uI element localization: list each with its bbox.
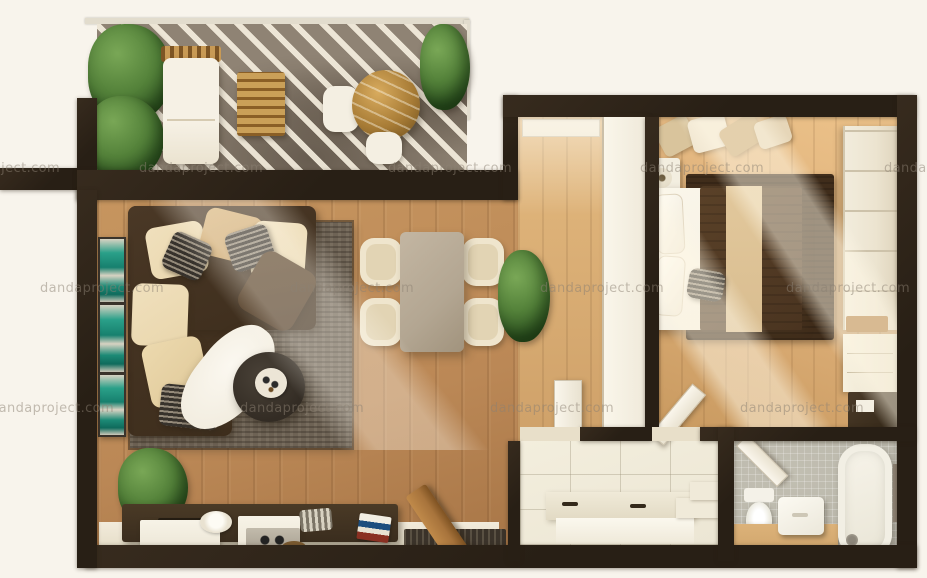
dining-plant	[498, 250, 550, 342]
watermark-text: dandaproject.com	[540, 281, 664, 296]
watermark-text: dandaproject.com	[139, 161, 263, 176]
balcony-plant	[420, 24, 470, 110]
watermark-text: dandaproject.com	[490, 401, 614, 416]
balcony-chair	[366, 132, 402, 164]
wall-bedroom-bottom-a	[580, 427, 652, 441]
hall-step	[690, 482, 718, 500]
wall-left	[77, 190, 97, 568]
watermark-text: dandaproject.com	[0, 401, 114, 416]
wood-slat-table	[237, 72, 285, 136]
closet-front	[556, 518, 694, 544]
round-marble-table	[352, 70, 420, 140]
closet-handle	[630, 504, 646, 508]
watermark-text: dandaproject.com	[40, 281, 164, 296]
striped-pillow	[686, 267, 727, 303]
lounge-chair	[163, 58, 219, 164]
watermark-text: dandaproject.com	[290, 281, 414, 296]
watermark-text: dandaproject.com	[740, 401, 864, 416]
dining-chair	[360, 298, 402, 346]
watermark-text: dandaproject.com	[388, 161, 512, 176]
bedroom-door-threshold	[652, 427, 700, 441]
closet-top	[546, 492, 694, 520]
floor-plan-render: dandaproject.com dandaproject.com dandap…	[0, 0, 927, 578]
vessel-sink	[778, 497, 824, 535]
watermark-text: dandaproject.com	[240, 401, 364, 416]
coffee-table-tray	[255, 368, 287, 398]
book-stack	[356, 513, 391, 543]
bed-runner	[726, 186, 762, 332]
dining-chair	[462, 238, 504, 286]
watermark-text: dandaproject.com	[640, 161, 764, 176]
teal-wall-art	[98, 303, 126, 374]
bed-pillow	[654, 193, 685, 254]
wooden-box	[846, 316, 888, 332]
striped-cushion-small	[299, 508, 333, 533]
watermark-text: dandaproject.com	[884, 161, 927, 176]
wall-hall-bath	[718, 427, 734, 561]
toilet-tank	[744, 488, 774, 502]
watermark-text: dandaproject.com	[0, 161, 60, 176]
corridor-window	[522, 119, 600, 137]
wall-top-right	[503, 95, 915, 117]
wall-hall-left	[508, 441, 520, 561]
hall-threshold	[520, 427, 580, 441]
white-hat	[200, 511, 232, 533]
bedroom-wardrobe	[843, 126, 901, 330]
wall-bottom	[85, 545, 917, 568]
hall-step	[676, 498, 718, 518]
dining-chair	[360, 238, 402, 286]
watermark-text: dandaproject.com	[786, 281, 910, 296]
closet-handle	[562, 502, 578, 506]
drawer-unit	[843, 334, 897, 392]
